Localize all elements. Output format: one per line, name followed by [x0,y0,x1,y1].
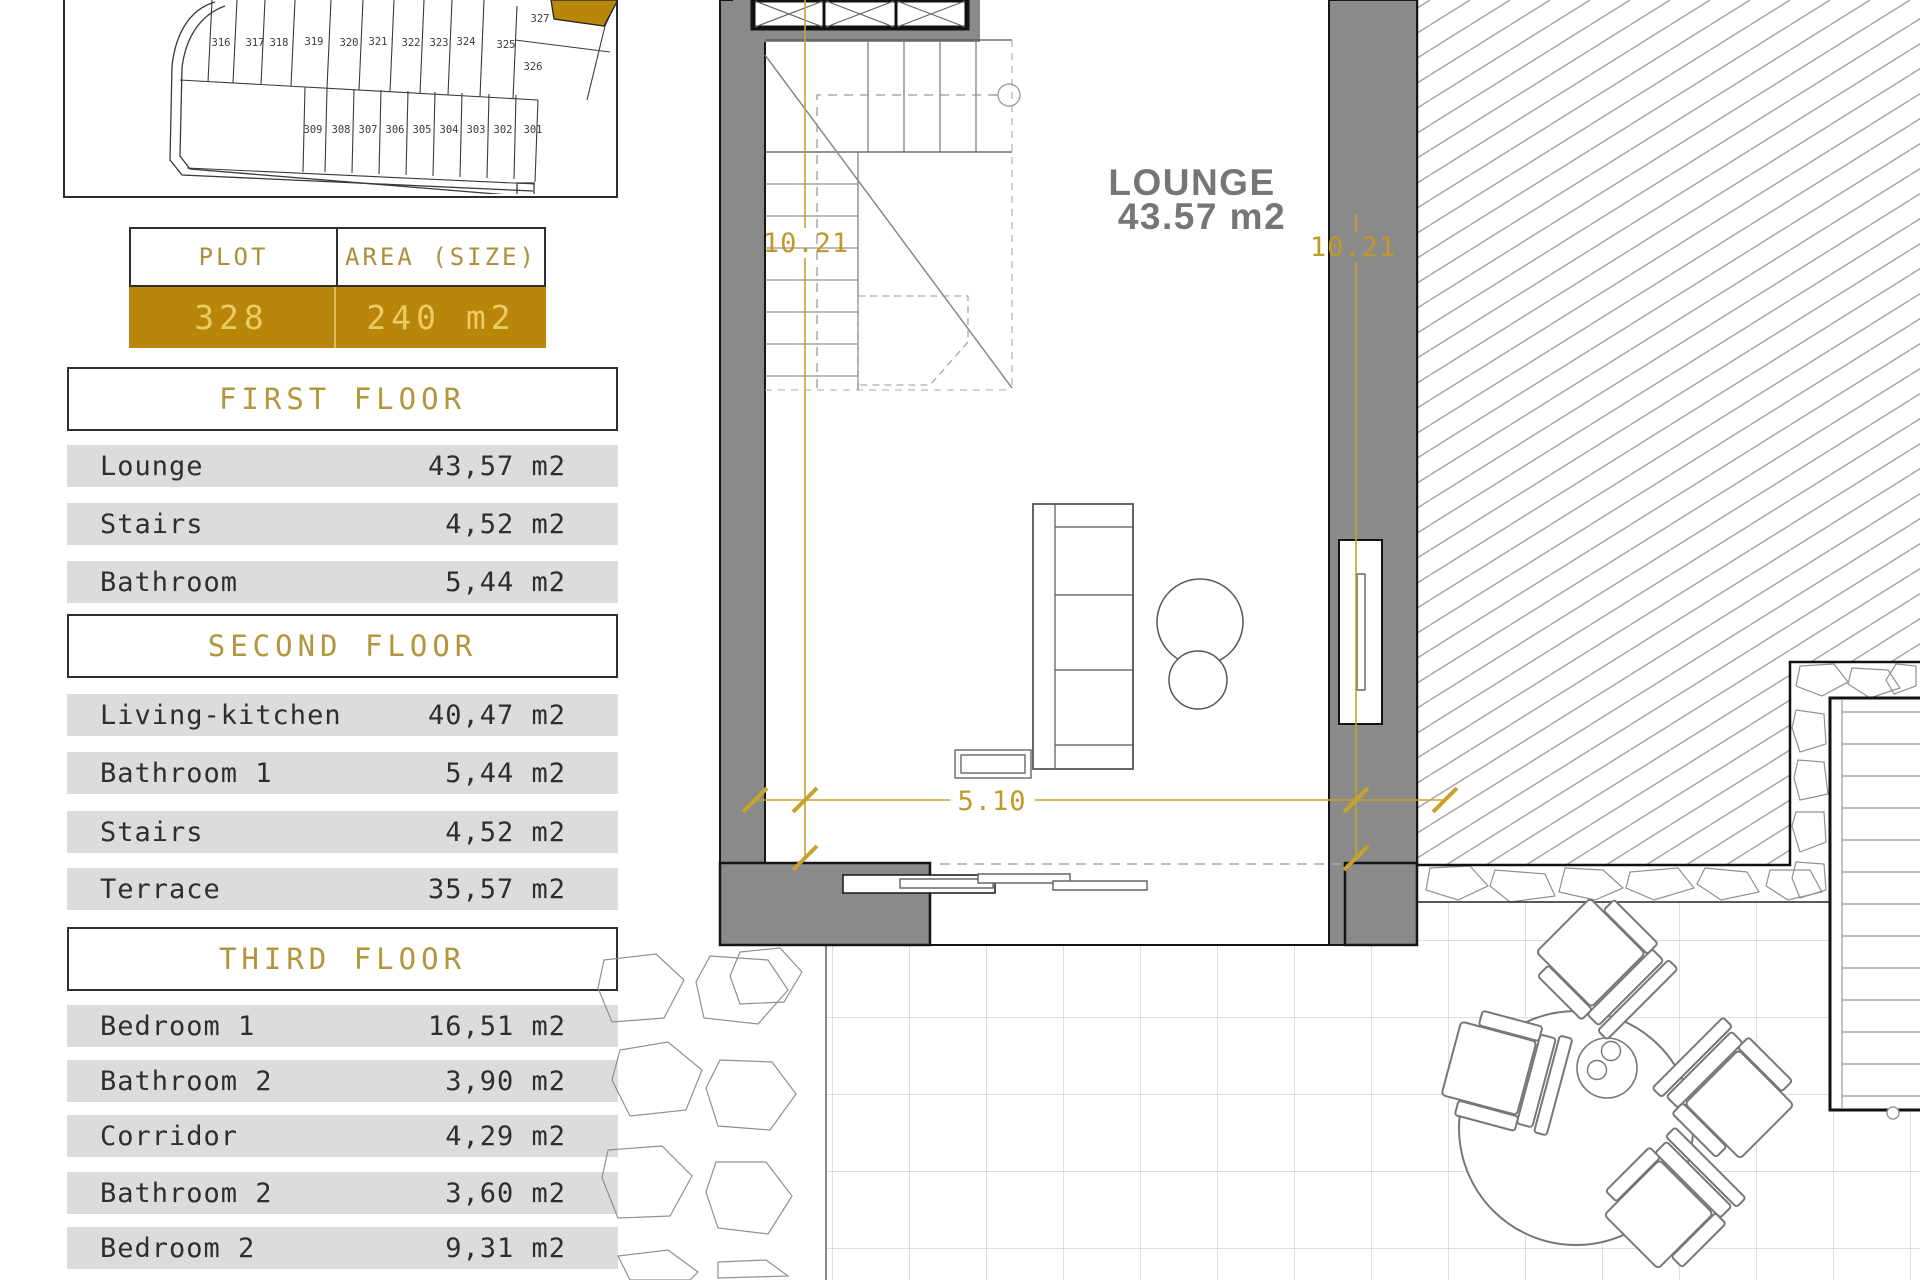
window-glass [1357,574,1365,690]
plot-number-label: 302 [494,124,513,136]
site-plan-drawing: 3163173183193203213223233243253273263093… [65,0,616,194]
dim-left-label: 10.21 [763,228,849,259]
stairs [765,40,1020,390]
floor-section-title: SECOND FLOOR [67,614,618,678]
room-label: Corridor [100,1121,238,1152]
room-label: Living-kitchen [100,700,342,731]
area-row: Living-kitchen40,47 m2 [67,694,618,736]
plot-number-label: 320 [340,37,359,49]
room-label: Bedroom 2 [100,1233,255,1264]
plot-number-label: 306 [386,124,405,136]
room-label: Stairs [100,509,204,540]
area-row: Bathroom 15,44 m2 [67,752,618,794]
plot-number-label: 327 [531,13,550,25]
area-row: Bedroom 116,51 m2 [67,1005,618,1047]
room-area-value: 3,90 m2 [445,1066,566,1097]
plot-number-label: 309 [304,124,323,136]
area-row: Corridor4,29 m2 [67,1115,618,1157]
site-plan: 3163173183193203213223233243253273263093… [63,0,618,198]
area-row: Bedroom 29,31 m2 [67,1227,618,1269]
area-row: Terrace35,57 m2 [67,868,618,910]
site-plan-parcels [180,0,616,184]
plot-number-label: 305 [413,124,432,136]
dim-bottom-label: 5.10 [957,786,1026,817]
right-wall [1329,0,1417,945]
floor-mat [955,750,1031,778]
plot-number-label: 326 [524,61,543,73]
plot-table-values: 328 240 m2 [129,287,546,348]
area-row: Bathroom 23,90 m2 [67,1060,618,1102]
area-row: Stairs4,52 m2 [67,811,618,853]
plot-number-label: 321 [369,36,388,48]
plot-number-label: 304 [440,124,459,136]
room-label: Terrace [100,874,221,905]
floor-section-title: FIRST FLOOR [67,367,618,431]
area-row: Bathroom5,44 m2 [67,561,618,603]
room-area-value: 16,51 m2 [428,1011,566,1042]
plot-number-label: 324 [457,36,476,48]
room-label: Lounge [100,451,204,482]
room-area: 43.57 m2 [1118,196,1286,237]
area-row: Stairs4,52 m2 [67,503,618,545]
room-label: Bathroom [100,567,238,598]
room-area-value: 35,57 m2 [428,874,566,905]
room-area-value: 5,44 m2 [445,567,566,598]
room-area-value: 5,44 m2 [445,758,566,789]
room-area-value: 4,52 m2 [445,817,566,848]
area-row: Bathroom 23,60 m2 [67,1172,618,1214]
plot-table-header: PLOT AREA (SIZE) [129,227,546,287]
plot-area: 240 m2 [336,287,546,348]
plot-number-label: 316 [212,37,231,49]
plot-number: 328 [129,287,336,348]
area-row: Lounge43,57 m2 [67,445,618,487]
floorplan-page: 3163173183193203213223233243253273263093… [0,0,1920,1280]
plot-number-label: 317 [246,37,265,49]
room-area-value: 40,47 m2 [428,700,566,731]
plot-number-label: 325 [497,39,516,51]
room-area-value: 43,57 m2 [428,451,566,482]
room-label: Bathroom 1 [100,758,273,789]
room-area-value: 3,60 m2 [445,1178,566,1209]
plot-number-label: 323 [430,37,449,49]
room-label: Bathroom 2 [100,1178,273,1209]
floor-plan: 10.21 10.21 5.10 LOUNGE 43.57 m2 [590,0,1920,1280]
room-label: Bedroom 1 [100,1011,255,1042]
floor-plan-drawing: 10.21 10.21 5.10 LOUNGE 43.57 m2 [590,0,1920,1280]
left-wall [720,0,765,945]
room-area-value: 9,31 m2 [445,1233,566,1264]
room-label: Bathroom 2 [100,1066,273,1097]
sofa [1033,504,1133,769]
walk-line-start [998,84,1020,106]
room-label: Stairs [100,817,204,848]
room-area-value: 4,29 m2 [445,1121,566,1152]
plot-number-label: 303 [467,124,486,136]
area-header-cell: AREA (SIZE) [338,229,544,285]
bottom-wall-right [1345,863,1417,945]
room-area-value: 4,52 m2 [445,509,566,540]
room-label-group: LOUNGE 43.57 m2 [1108,162,1286,237]
plot-number-label: 301 [524,124,543,136]
walls [720,0,1417,945]
side-tables [1157,579,1243,709]
pergola-deck [1830,698,1920,1119]
plot-number-label: 319 [305,36,324,48]
plot-number-label: 322 [402,37,421,49]
plot-table: PLOT AREA (SIZE) 328 240 m2 [129,227,546,348]
floor-section-title: THIRD FLOOR [67,927,618,991]
plot-number-label: 318 [270,37,289,49]
plot-number-label: 307 [359,124,378,136]
dim-right-label: 10.21 [1310,232,1396,263]
plot-number-label: 308 [332,124,351,136]
plot-header-cell: PLOT [131,229,338,285]
